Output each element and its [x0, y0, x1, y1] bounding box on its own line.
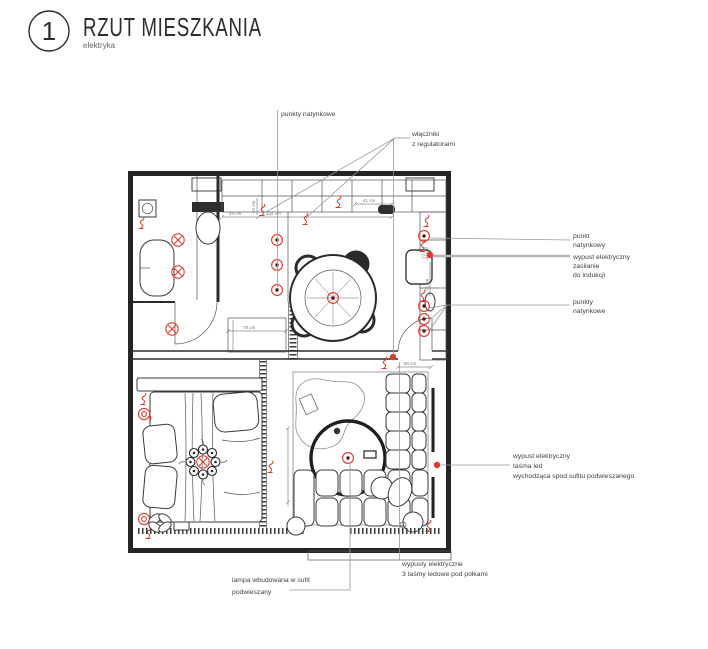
toilet-bowl: [196, 212, 220, 244]
dim-label: 62 cm: [251, 200, 256, 213]
annotation-label: wypusty elektryczne: [401, 561, 463, 568]
feed-point-icon: [427, 252, 433, 258]
annotation-wypust-indukcja: wypust elektryczny zasilanie do indukcji: [433, 254, 631, 279]
title-block: 1 RZUT MIESZKANIA elektryka: [29, 11, 262, 51]
feed-point-icon: [434, 462, 440, 468]
annotation-label: wychodząca spod sufitu podwieszanego: [512, 473, 635, 480]
dim-label: 80 cm: [404, 361, 417, 366]
pillow: [142, 423, 178, 464]
annotation-label: zasilanie: [573, 263, 600, 270]
pillow: [212, 391, 259, 433]
floor-plan-svg: 44 cm 134 cm 41 cm 62 cm 78 cm 80 cm 27 …: [0, 0, 708, 649]
annotation-label: włączniki: [411, 131, 440, 138]
dim-label: 27 cm: [422, 246, 427, 259]
page-title: RZUT MIESZKANIA: [83, 12, 262, 42]
annotation-punkt-natynkowy: punkt natynkowy: [430, 233, 606, 249]
annotation-label: 3 taśmy ledowe pod półkami: [402, 571, 488, 578]
annotation-label: lampa wbudowana w sufit: [232, 577, 310, 584]
page-subtitle: elektryka: [83, 41, 116, 50]
table-tray: [364, 451, 376, 458]
dim-label: 134 cm: [266, 211, 281, 216]
cooktop: [378, 205, 395, 214]
pillow: [142, 465, 178, 510]
annotation-label: punkt: [573, 233, 590, 240]
annotation-label: wypust elektryczny: [512, 453, 571, 460]
toilet-tank: [192, 202, 224, 212]
annotation-label: punkty: [573, 299, 594, 306]
annotation-label: z regulatorami: [412, 141, 456, 148]
annotation-label: taśma led: [513, 463, 543, 470]
feed-point-icon: [390, 354, 396, 360]
annotation-label: wypust elektryczny: [572, 254, 631, 261]
drawing-sheet: 44 cm 134 cm 41 cm 62 cm 78 cm 80 cm 27 …: [0, 0, 708, 649]
dim-label: 44 cm: [229, 211, 242, 216]
sheet-number: 1: [42, 16, 56, 46]
washing-machine: [139, 200, 156, 217]
annotation-label: punkty natynkowe: [281, 111, 336, 118]
sofa-right-run: [386, 374, 426, 469]
annotation-label: natynkowy: [573, 242, 606, 249]
side-table: [287, 517, 305, 535]
dim-label: 75 cm: [425, 278, 430, 291]
annotation-label: do indukcji: [573, 272, 606, 279]
small-object: [334, 428, 340, 434]
dim-label: 41 cm: [363, 198, 376, 203]
annotation-punkty-natynkowe-right: punkty natynkowe: [429, 299, 606, 331]
dim-label: 78 cm: [243, 325, 256, 330]
annotation-tasma-led: wypust elektryczny taśma led wychodząca …: [441, 453, 635, 480]
annotation-label: natynkowe: [573, 308, 606, 315]
annotation-label: podwieszany: [232, 589, 272, 596]
headboard: [137, 378, 262, 391]
